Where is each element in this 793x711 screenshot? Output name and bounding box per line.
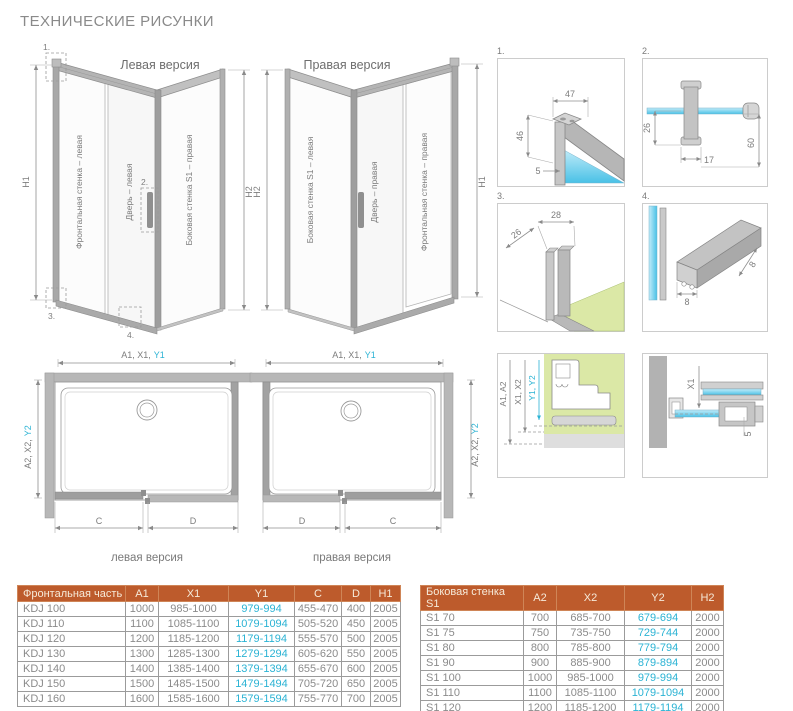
label-front-wall: Фронтальная стенка – правая	[419, 132, 429, 251]
table-row: KDJ 13013001285-13001279-1294605-6205502…	[18, 647, 401, 662]
table-cell: KDJ 120	[18, 632, 126, 647]
iso-drawing-right-version: Правая версия H2 H1 Боковая стенка S1	[255, 42, 490, 352]
front-part-table: Фронтальная частьA1X1Y1CDH1 KDJ 10010009…	[17, 585, 401, 707]
plan-left-caption: левая версия	[111, 552, 183, 564]
table-cell: KDJ 150	[18, 677, 126, 692]
door-handle	[358, 192, 364, 228]
table-cell: S1 120	[421, 701, 524, 711]
dim-8-height: 8	[747, 260, 758, 270]
detail-6-box: X1 5	[642, 353, 768, 478]
label-side-wall: Боковая стенка S1 – правая	[184, 134, 194, 245]
table-cell: 2000	[692, 671, 724, 686]
detail-4-box: 8 8	[642, 203, 768, 332]
building-wall-top	[250, 373, 453, 382]
label-side-wall: Боковая стенка S1 – левая	[305, 136, 315, 243]
table-cell: 500	[342, 632, 371, 647]
table-cell: 985-1000	[159, 602, 229, 617]
building-wall-left	[45, 373, 54, 518]
door-handle	[147, 192, 153, 228]
table-cell: S1 80	[421, 641, 524, 656]
table-cell: 655-670	[295, 662, 342, 677]
table-row: S1 75750735-750729-7442000	[421, 626, 724, 641]
table-cell: 2005	[371, 617, 401, 632]
table-cell: 605-620	[295, 647, 342, 662]
table-header-row: Фронтальная частьA1X1Y1CDH1	[18, 586, 401, 602]
table-cell: 2000	[692, 656, 724, 671]
detail-4-label: 4.	[642, 191, 650, 201]
callout-4: 4.	[127, 330, 134, 340]
handle-bar	[684, 87, 698, 139]
table-cell: 1185-1200	[557, 701, 625, 711]
table-row: KDJ 14014001385-14001379-1394655-6706002…	[18, 662, 401, 677]
table-cell: 1285-1300	[159, 647, 229, 662]
table-cell: 600	[342, 662, 371, 677]
table-cell: 2000	[692, 626, 724, 641]
header-cell: Боковая стенка S1	[421, 586, 524, 611]
header-cell: Y2	[625, 586, 692, 611]
detail-2-box: 26 17 60	[642, 58, 768, 187]
table-row: S1 80800785-800779-7942000	[421, 641, 724, 656]
dim-46: 46	[515, 131, 525, 141]
dim-5: 5	[535, 166, 540, 176]
table-cell: 685-700	[557, 611, 625, 626]
side-wall-table: Боковая стенка S1A2X2Y2H2 S1 70700685-70…	[420, 585, 724, 711]
table-cell: 1300	[126, 647, 159, 662]
table-cell: 2000	[692, 611, 724, 626]
table-cell: 2005	[371, 677, 401, 692]
table-cell: 450	[342, 617, 371, 632]
table-cell: S1 90	[421, 656, 524, 671]
door-glass	[263, 495, 340, 502]
table-cell: 1100	[126, 617, 159, 632]
table-cell: 1000	[126, 602, 159, 617]
table-cell: 679-694	[625, 611, 692, 626]
table-cell: 979-994	[229, 602, 295, 617]
detail-3-label: 3.	[497, 191, 505, 201]
page-title: ТЕХНИЧЕСКИЕ РИСУНКИ	[20, 13, 214, 30]
table-cell: 2005	[371, 647, 401, 662]
header-cell: X2	[557, 586, 625, 611]
label-door: Дверь – правая	[369, 161, 379, 223]
wall-area	[649, 356, 667, 448]
dim-c: C	[96, 516, 103, 526]
table-cell: 729-744	[625, 626, 692, 641]
table-cell: 1000	[524, 671, 557, 686]
header-cell: A2	[524, 586, 557, 611]
table-cell: 2000	[692, 641, 724, 656]
iso-drawing-left-version: Левая версия 1. 2. 3. 4.	[20, 42, 255, 352]
table-cell: 2005	[371, 662, 401, 677]
dim-x1: X1	[686, 378, 696, 389]
dim-26: 26	[509, 227, 523, 241]
table-cell: 1200	[524, 701, 557, 711]
dim-h2: H2	[252, 186, 262, 198]
table-cell: 800	[524, 641, 557, 656]
callout-1: 1.	[43, 42, 50, 52]
dim-28: 28	[551, 210, 561, 220]
table-cell: 900	[524, 656, 557, 671]
dim-5: 5	[743, 431, 753, 436]
plan-right-structure	[250, 373, 453, 518]
table-cell: 1585-1600	[159, 692, 229, 707]
table-cell: S1 70	[421, 611, 524, 626]
detail-3-drawing: 28 26	[498, 204, 624, 331]
technical-drawings-page: ТЕХНИЧЕСКИЕ РИСУНКИ Левая версия 1.	[0, 0, 793, 711]
table-cell: 1385-1400	[159, 662, 229, 677]
detail-1-box: 47 46 5	[497, 58, 625, 187]
plan-right-caption: правая версия	[313, 552, 391, 564]
detail-5-drawing: A1, A2 X1, X2 Y1, Y2	[498, 354, 624, 477]
dim-17: 17	[704, 155, 714, 165]
table-cell: 705-720	[295, 677, 342, 692]
table-cell: 1500	[126, 677, 159, 692]
table-cell: KDJ 100	[18, 602, 126, 617]
header-cell: D	[342, 586, 371, 602]
table-row: KDJ 15015001485-15001479-1494705-7206502…	[18, 677, 401, 692]
table-cell: 1379-1394	[229, 662, 295, 677]
table-cell: 2000	[692, 686, 724, 701]
table-cell: 505-520	[295, 617, 342, 632]
table-cell: 785-800	[557, 641, 625, 656]
plan-right-top-dim: A1, X1,Y1	[332, 350, 376, 360]
callout-3: 3.	[48, 311, 55, 321]
dim-h1: H1	[21, 176, 31, 188]
table-row: KDJ 1001000985-1000979-994455-4704002005	[18, 602, 401, 617]
table-row: S1 90900885-900879-8942000	[421, 656, 724, 671]
detail-3-box: 28 26	[497, 203, 625, 332]
detail-5-box: A1, A2 X1, X2 Y1, Y2	[497, 353, 625, 478]
table-cell: 550	[342, 647, 371, 662]
callout-2: 2.	[141, 177, 148, 187]
table-cell: 2005	[371, 602, 401, 617]
table-cell: 1079-1094	[229, 617, 295, 632]
table-cell: 1200	[126, 632, 159, 647]
building-wall-top	[45, 373, 252, 382]
header-cell: H1	[371, 586, 401, 602]
table-cell: 1579-1594	[229, 692, 295, 707]
label-front-wall: Фронтальная стенка – левая	[74, 135, 84, 249]
table-cell: KDJ 140	[18, 662, 126, 677]
dim-c: C	[390, 516, 397, 526]
label-door: Дверь – левая	[124, 163, 134, 220]
table-cell: 735-750	[557, 626, 625, 641]
detail-6-drawing: X1 5	[643, 354, 767, 477]
dim-d: D	[190, 516, 197, 526]
header-cell: H2	[692, 586, 724, 611]
table-row: S1 1001000985-1000979-9942000	[421, 671, 724, 686]
table-cell: 885-900	[557, 656, 625, 671]
table-row: S1 70700685-700679-6942000	[421, 611, 724, 626]
table-cell: 700	[524, 611, 557, 626]
dim-y1y2: Y1, Y2	[527, 375, 537, 401]
table-row: KDJ 16016001585-16001579-1594755-7707002…	[18, 692, 401, 707]
table-cell: KDJ 160	[18, 692, 126, 707]
table-cell: KDJ 110	[18, 617, 126, 632]
door-glass	[148, 495, 238, 502]
table-row: S1 11011001085-11001079-10942000	[421, 686, 724, 701]
dim-8-width: 8	[684, 297, 689, 307]
knob	[743, 103, 759, 119]
dim-47: 47	[565, 89, 575, 99]
header-cell: A1	[126, 586, 159, 602]
detail-1-label: 1.	[497, 46, 505, 56]
plan-left-top-dim: A1, X1,Y1	[121, 350, 165, 360]
table-cell: 1279-1294	[229, 647, 295, 662]
header-cell: Y1	[229, 586, 295, 602]
dim-a1a2: A1, A2	[498, 381, 508, 406]
table-cell: 1479-1494	[229, 677, 295, 692]
table-cell: 979-994	[625, 671, 692, 686]
table-cell: 2005	[371, 632, 401, 647]
front-fixed-glass	[345, 492, 441, 499]
table-cell: 985-1000	[557, 671, 625, 686]
plan-right-side-dim: A2, X2,Y2	[470, 423, 480, 467]
plan-view-right-version: A1, X1,Y1 A2, X2,Y2 D C правая ве	[250, 350, 484, 570]
table-cell: 1085-1100	[159, 617, 229, 632]
table-cell: 779-794	[625, 641, 692, 656]
table-cell: S1 100	[421, 671, 524, 686]
table-cell: KDJ 130	[18, 647, 126, 662]
plan-view-left-version: A1, X1,Y1 A2, X2,Y2 C D левая вер	[25, 350, 255, 570]
table-cell: 755-770	[295, 692, 342, 707]
table-cell: 400	[342, 602, 371, 617]
table-row: S1 12012001185-12001179-11942000	[421, 701, 724, 711]
detail-1-drawing: 47 46 5	[498, 59, 624, 186]
table-cell: 2000	[692, 701, 724, 711]
table-cell: 750	[524, 626, 557, 641]
front-fixed-glass	[55, 492, 143, 499]
dim-h1: H1	[477, 176, 487, 188]
dim-26: 26	[642, 123, 652, 133]
plan-left-structure	[45, 373, 252, 518]
table-row: KDJ 11011001085-11001079-1094505-5204502…	[18, 617, 401, 632]
table-cell: 1400	[126, 662, 159, 677]
table-cell: 879-894	[625, 656, 692, 671]
glass-pane	[649, 206, 657, 300]
header-cell: C	[295, 586, 342, 602]
detail-2-label: 2.	[642, 46, 650, 56]
table-cell: 1179-1194	[229, 632, 295, 647]
dim-x1x2: X1, X2	[513, 379, 523, 405]
table-row: KDJ 12012001185-12001179-1194555-5705002…	[18, 632, 401, 647]
detail-4-drawing: 8 8	[643, 204, 767, 331]
table-cell: 1185-1200	[159, 632, 229, 647]
table-cell: 1079-1094	[625, 686, 692, 701]
table-header-row: Боковая стенка S1A2X2Y2H2	[421, 586, 724, 611]
iso-left-caption: Левая версия	[120, 58, 199, 72]
dim-60: 60	[746, 138, 756, 148]
header-cell: X1	[159, 586, 229, 602]
table-cell: 1179-1194	[625, 701, 692, 711]
detail-2-drawing: 26 17 60	[643, 59, 767, 186]
plan-left-side-dim: A2, X2,Y2	[23, 425, 33, 469]
building-wall-right	[444, 373, 453, 518]
table-cell: 1600	[126, 692, 159, 707]
header-cell: Фронтальная часть	[18, 586, 126, 602]
dim-d: D	[299, 516, 306, 526]
table-cell: 1485-1500	[159, 677, 229, 692]
table-cell: 455-470	[295, 602, 342, 617]
iso-right-caption: Правая версия	[304, 58, 391, 72]
table-cell: 700	[342, 692, 371, 707]
table-cell: 1100	[524, 686, 557, 701]
table-cell: 650	[342, 677, 371, 692]
table-cell: 2005	[371, 692, 401, 707]
table-cell: S1 110	[421, 686, 524, 701]
table-cell: 1085-1100	[557, 686, 625, 701]
table-cell: S1 75	[421, 626, 524, 641]
table-cell: 555-570	[295, 632, 342, 647]
